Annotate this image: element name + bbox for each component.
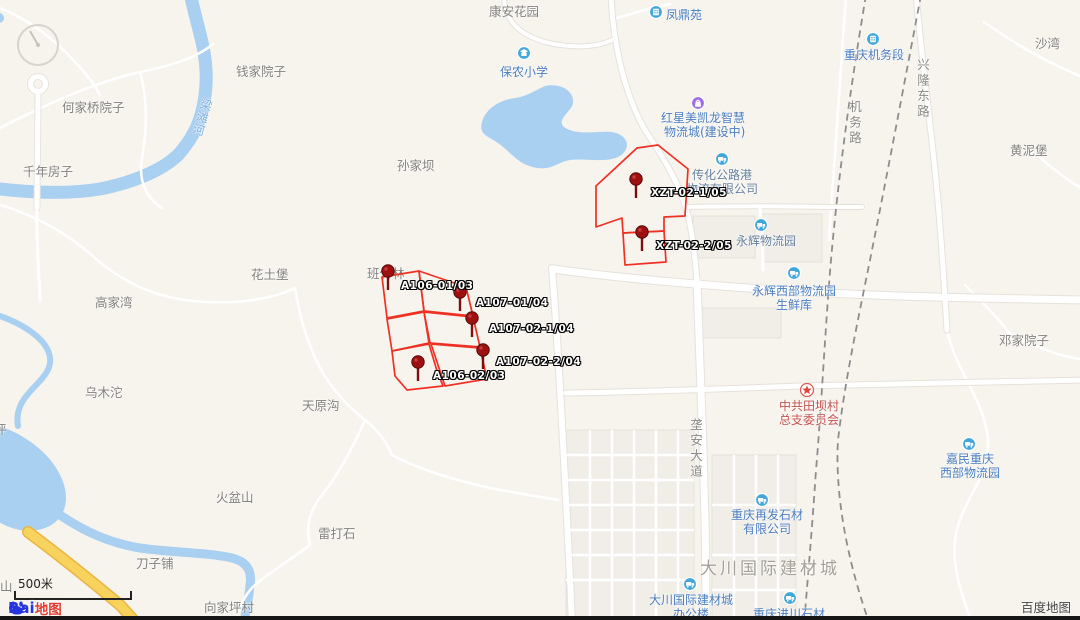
map-pin[interactable] <box>477 344 489 369</box>
baidu-logo-map-text: 地图 <box>35 598 62 618</box>
scale-label: 500米 <box>18 577 53 591</box>
baidu-paw-icon <box>8 598 26 616</box>
plot-boundary-polygon <box>596 145 688 233</box>
bottom-bar <box>0 616 1080 620</box>
map-pin[interactable] <box>636 226 648 251</box>
map-attribution: 百度地图 <box>1021 597 1071 616</box>
annotation-overlay <box>0 0 1080 620</box>
baidu-logo[interactable]: Bai 地图 <box>8 598 62 618</box>
map-pin[interactable] <box>412 356 424 381</box>
map-pin[interactable] <box>630 173 642 198</box>
map-pin[interactable] <box>454 286 466 311</box>
baidu-map-view[interactable]: 何家桥院子千年房子钱家院子孙家坝康安花园高家湾花土堡班竹林乌木沱天原沟火盆山雷打… <box>0 0 1080 620</box>
scale-bar: 500米 <box>14 575 49 592</box>
